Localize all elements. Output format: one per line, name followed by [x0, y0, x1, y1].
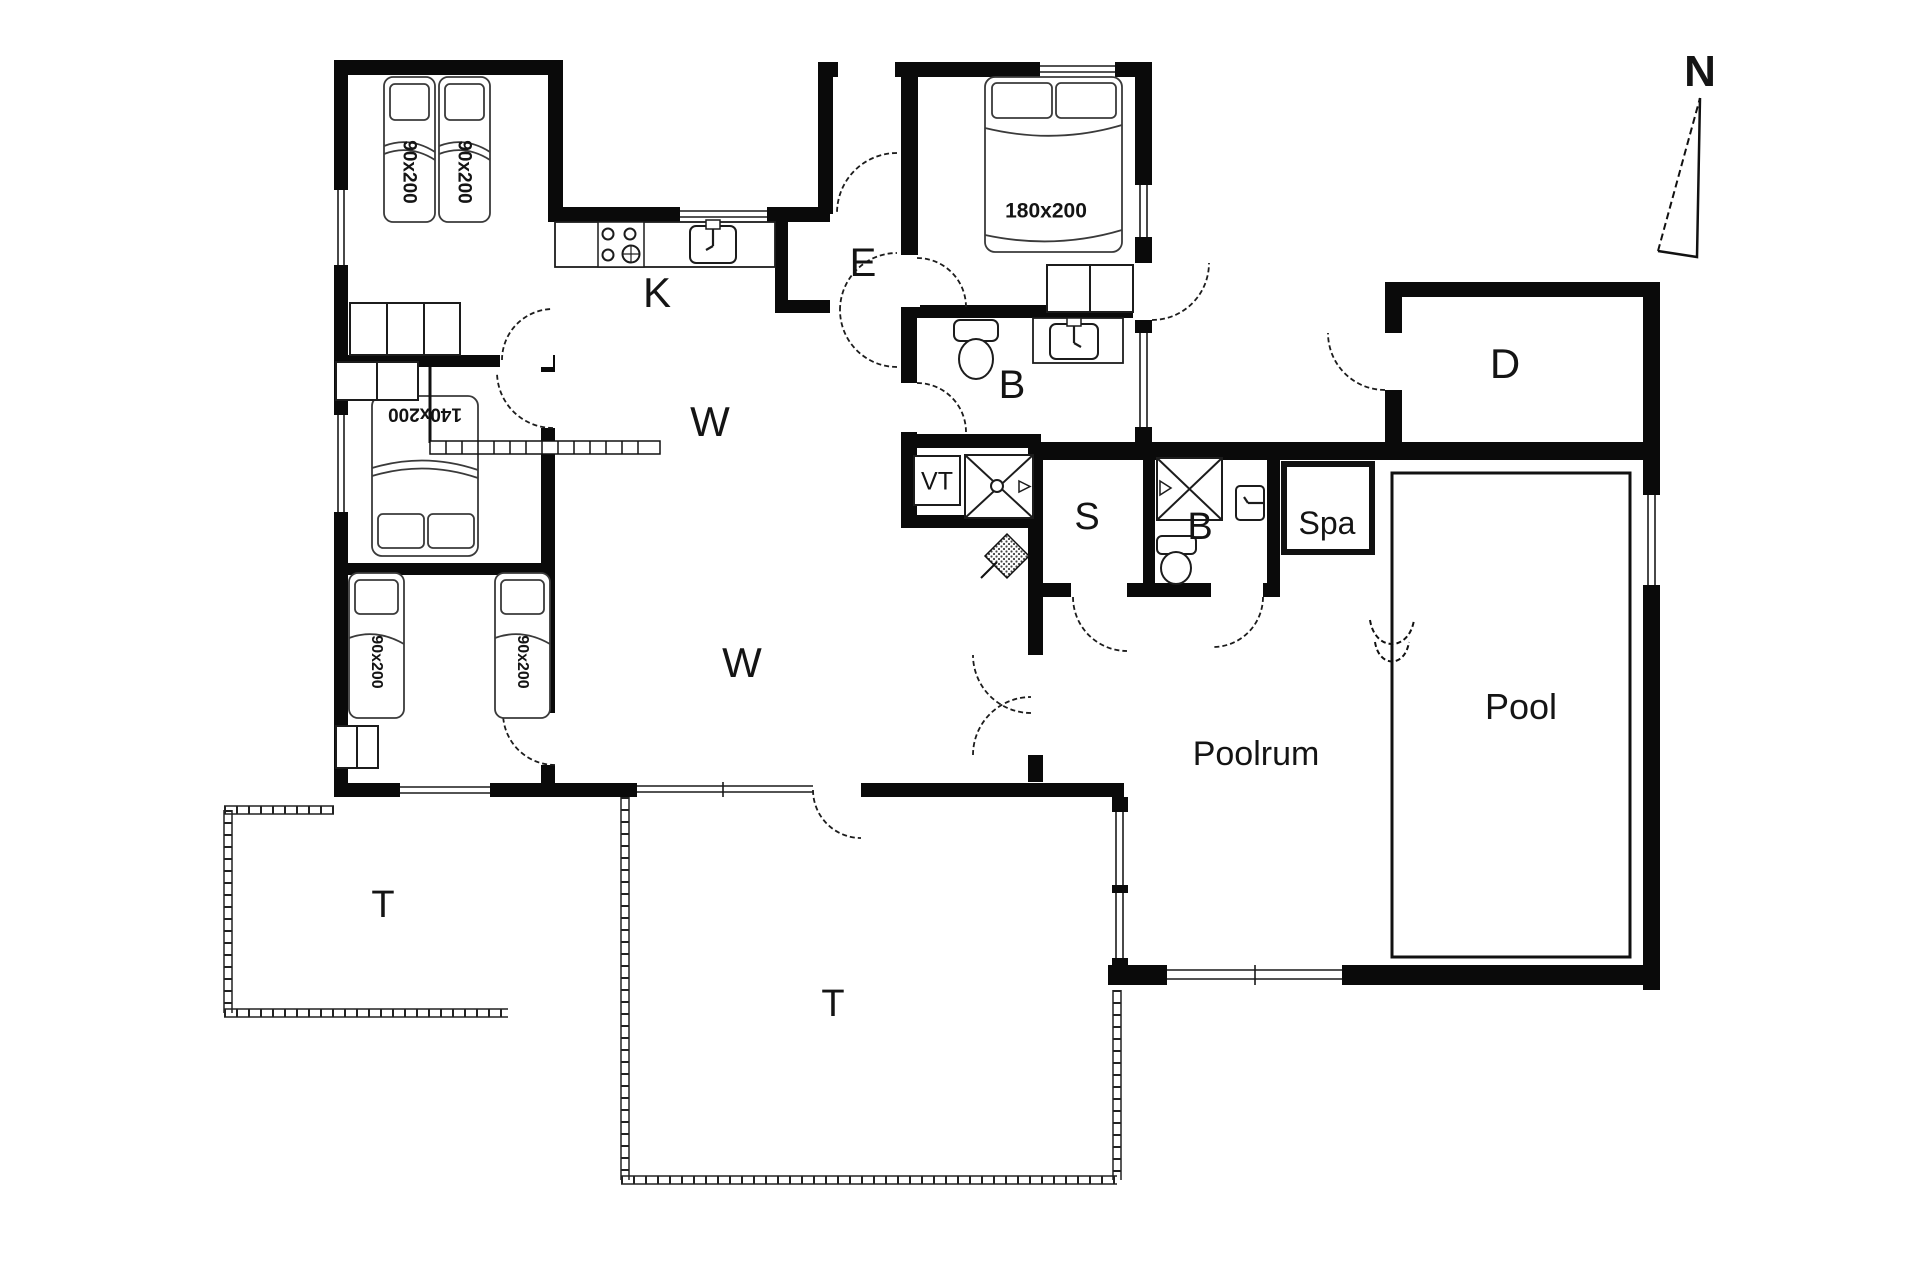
label-terrace-south: T — [821, 985, 844, 1023]
label-bath-1: B — [999, 365, 1026, 405]
label-pool: Pool — [1485, 689, 1557, 725]
floorplan-page: KWWEBSBDSpaPoolPoolrumVTTTN90x20090x2001… — [0, 0, 1920, 1280]
label-bed-90-d: 90x200 — [514, 635, 530, 688]
label-living-lower: W — [722, 642, 762, 684]
label-layer: KWWEBSBDSpaPoolPoolrumVTTTN90x20090x2001… — [0, 0, 1920, 1280]
label-bed-90-b: 90x200 — [455, 140, 474, 203]
label-sauna: S — [1074, 498, 1099, 536]
label-bed-90-c: 90x200 — [368, 635, 384, 688]
label-bed-140: 140x200 — [388, 405, 462, 424]
label-utility: VT — [921, 470, 953, 495]
label-terrace-west: T — [371, 886, 394, 924]
label-spa: Spa — [1299, 507, 1356, 539]
label-bed-180: 180x200 — [1005, 201, 1087, 222]
label-kitchen: K — [643, 272, 671, 314]
label-entry: E — [850, 243, 877, 283]
label-poolroom: Poolrum — [1193, 737, 1320, 771]
label-bath-2: B — [1187, 508, 1212, 546]
label-bed-90-a: 90x200 — [400, 140, 419, 203]
label-compass-n: N — [1684, 50, 1716, 94]
label-depot: D — [1490, 343, 1520, 385]
label-living-upper: W — [690, 401, 730, 443]
